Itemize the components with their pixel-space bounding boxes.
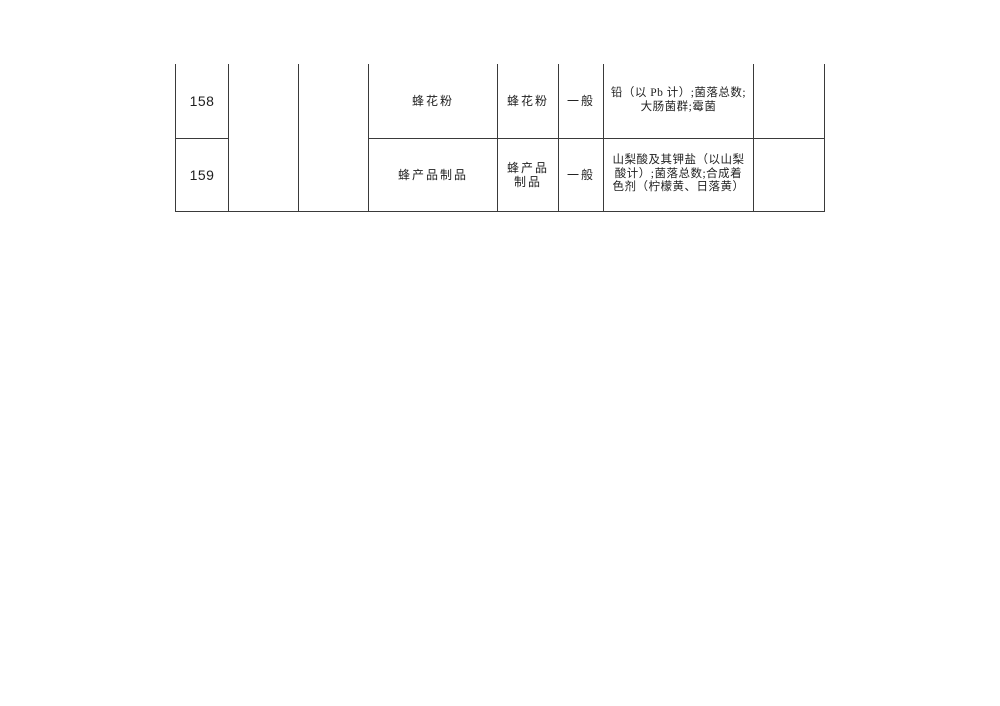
test-items-line: 铅（以 Pb 计）;菌落总数; — [606, 87, 751, 101]
blank-merged-cell — [229, 64, 299, 211]
test-items-cell: 铅（以 Pb 计）;菌落总数; 大肠菌群;霉菌 — [604, 64, 754, 138]
product-name-cell: 蜂产品制品 — [369, 138, 498, 211]
category-line: 蜂花粉 — [500, 94, 556, 108]
test-items-line: 色剂（柠檬黄、日落黄） — [606, 181, 751, 195]
blank-cell — [754, 138, 825, 211]
sampling-table: 158 蜂花粉 蜂花粉 一般 铅（以 Pb 计）;菌落总数; 大肠菌群;霉菌 1… — [175, 64, 825, 212]
category-cell: 蜂花粉 — [498, 64, 559, 138]
row-number-cell: 158 — [176, 64, 229, 138]
grade-cell: 一般 — [559, 64, 604, 138]
row-number-cell: 159 — [176, 138, 229, 211]
category-line: 蜂产品 — [500, 161, 556, 175]
test-items-line: 大肠菌群;霉菌 — [606, 101, 751, 115]
category-cell: 蜂产品 制品 — [498, 138, 559, 211]
table-row: 158 蜂花粉 蜂花粉 一般 铅（以 Pb 计）;菌落总数; 大肠菌群;霉菌 — [176, 64, 825, 138]
test-items-line: 山梨酸及其钾盐（以山梨 — [606, 154, 751, 168]
blank-merged-cell — [299, 64, 369, 211]
test-items-cell: 山梨酸及其钾盐（以山梨 酸计）;菌落总数;合成着 色剂（柠檬黄、日落黄） — [604, 138, 754, 211]
test-items-line: 酸计）;菌落总数;合成着 — [606, 168, 751, 182]
product-name-cell: 蜂花粉 — [369, 64, 498, 138]
grade-cell: 一般 — [559, 138, 604, 211]
document-page: 158 蜂花粉 蜂花粉 一般 铅（以 Pb 计）;菌落总数; 大肠菌群;霉菌 1… — [0, 0, 1000, 706]
category-line: 制品 — [500, 175, 556, 189]
blank-cell — [754, 64, 825, 138]
